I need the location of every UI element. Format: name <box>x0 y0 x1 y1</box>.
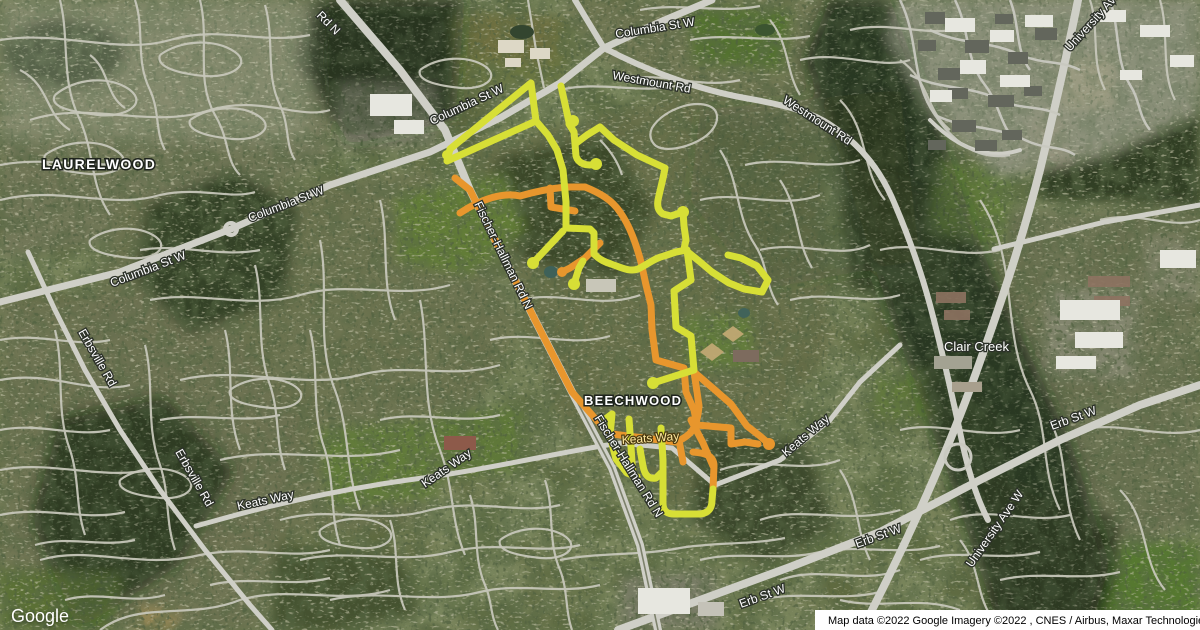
svg-text:BEECHWOOD: BEECHWOOD <box>584 393 682 408</box>
svg-text:LAURELWOOD: LAURELWOOD <box>42 156 156 172</box>
svg-text:Google: Google <box>11 606 69 626</box>
svg-text:Clair Creek: Clair Creek <box>944 339 1010 354</box>
svg-text:Map data ©2022 Google Imagery: Map data ©2022 Google Imagery ©2022 , CN… <box>828 615 1200 627</box>
